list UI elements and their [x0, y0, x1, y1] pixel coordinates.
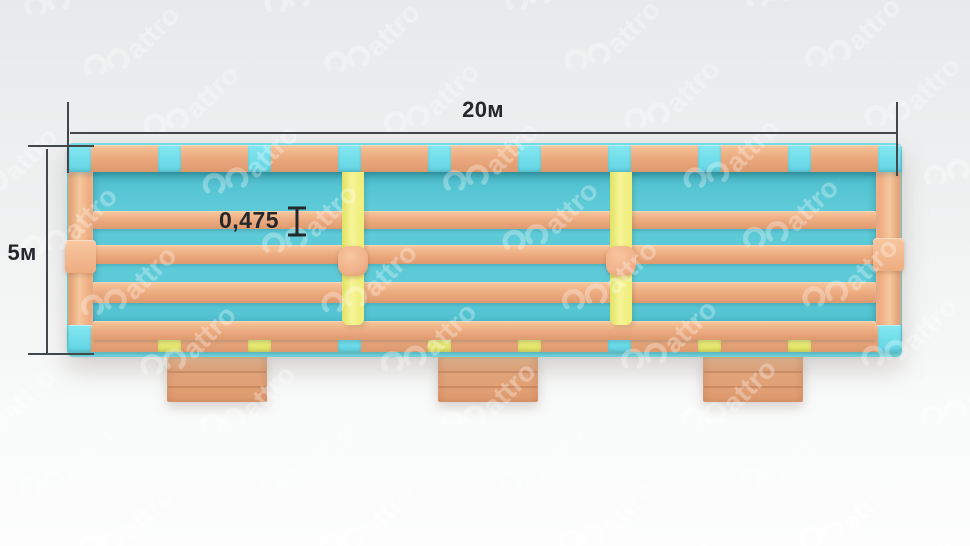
- step-tread-line: [704, 386, 802, 388]
- height-dimension-tick-bottom: [28, 353, 94, 355]
- step-tread-line: [439, 371, 537, 373]
- height-dimension-tick-top: [28, 145, 94, 147]
- divider-layer: [67, 143, 902, 357]
- step-tread-line: [439, 386, 537, 388]
- step-tread-line: [704, 371, 802, 373]
- width-dimension-tick-left: [67, 102, 69, 173]
- entry-step: [703, 354, 803, 402]
- step-tread-line: [168, 371, 266, 373]
- step-tread-line: [168, 386, 266, 388]
- pool-structure-base: [67, 143, 902, 357]
- right-wall-middle-block: [873, 238, 904, 271]
- height-dimension-label: 5м: [2, 240, 42, 266]
- divider-middle-ball: [338, 246, 368, 276]
- width-dimension-label: 20м: [433, 97, 533, 123]
- beam-extent-icon: [286, 205, 308, 238]
- render-canvas: attro 20м 5м 0,475: [0, 0, 970, 546]
- width-dimension-line: [70, 132, 897, 134]
- divider-middle-ball: [606, 246, 636, 276]
- beam-width-label: 0,475: [219, 207, 279, 234]
- width-dimension-tick-right: [896, 102, 898, 176]
- entry-step: [438, 354, 538, 402]
- left-wall-middle-block: [65, 240, 96, 273]
- height-dimension-line: [46, 149, 48, 353]
- entry-step: [167, 354, 267, 402]
